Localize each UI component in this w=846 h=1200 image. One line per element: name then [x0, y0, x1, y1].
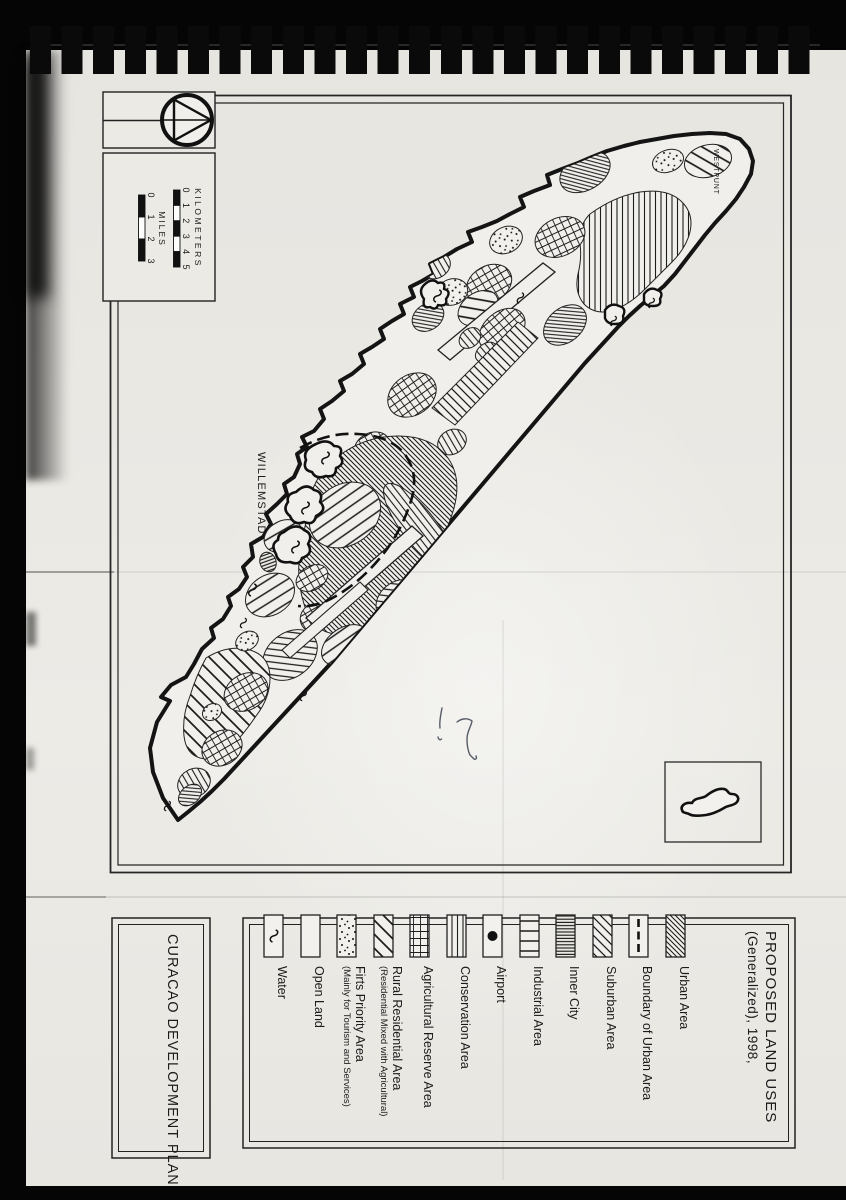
legend-item-label: Industrial Area	[531, 966, 545, 1046]
handwritten-pen-marks	[438, 708, 476, 759]
svg-text:0: 0	[181, 187, 191, 192]
scale-box: KILOMETERS 0 1 2 3 4 5 MILES	[103, 153, 215, 301]
svg-text:0: 0	[146, 192, 156, 197]
legend-item-label: Agricultural Reserve Area	[421, 966, 435, 1108]
north-arrow-box	[103, 92, 215, 148]
island-curacao: WILLEMSTAD WESTPUNT	[150, 133, 753, 820]
swatch-inner-city	[556, 915, 575, 957]
swatch-open-land	[301, 915, 320, 957]
swatch-rural	[374, 915, 393, 957]
swatch-tourism	[337, 915, 356, 957]
legend-item-label: Boundary of Urban Area	[640, 966, 654, 1100]
legend-item-label: Open Land	[312, 966, 326, 1028]
map-title: PROPOSED LAND USES (Generalized), 1998,	[745, 931, 779, 1123]
legend-item-label: Inner City	[567, 966, 581, 1020]
legend-item-label: Firts Priority Area	[353, 966, 367, 1062]
map-title-line2: (Generalized), 1998,	[745, 931, 760, 1064]
scanned-page: KILOMETERS 0 1 2 3 4 5 MILES	[0, 0, 846, 1200]
svg-text:3: 3	[181, 234, 191, 239]
scale-mile-bar	[139, 195, 146, 261]
inset-map	[665, 762, 761, 842]
legend-item-label: Conservation Area	[458, 966, 472, 1069]
svg-text:2: 2	[146, 236, 156, 241]
westpunt-label: WESTPUNT	[712, 149, 719, 195]
svg-text:1: 1	[181, 203, 191, 208]
klein-curacao-island	[682, 789, 738, 816]
svg-text:3: 3	[146, 258, 156, 263]
legend-item-label: Suburban Area	[604, 966, 618, 1049]
scale-km-label: KILOMETERS	[193, 188, 203, 268]
swatch-suburban	[593, 915, 612, 957]
legend-item-label: Water	[275, 966, 289, 999]
legend-labels: Water Open Land Firts Priority Area (Mai…	[275, 966, 691, 1116]
svg-text:1: 1	[146, 214, 156, 219]
svg-text:5: 5	[181, 264, 191, 269]
svg-text:4: 4	[181, 249, 191, 254]
map-title-line1: PROPOSED LAND USES	[762, 931, 779, 1123]
legend-box: Water Open Land Firts Priority Area (Mai…	[243, 915, 795, 1148]
map-artwork: KILOMETERS 0 1 2 3 4 5 MILES	[0, 0, 846, 1200]
scale-miles-label: MILES	[157, 211, 167, 247]
swatch-conservation	[447, 915, 466, 957]
legend-item-sublabel: (Residential Mixed with Agricultural)	[378, 966, 389, 1116]
swatch-industrial	[520, 915, 539, 957]
legend-swatches	[264, 915, 685, 957]
swatch-agriculture	[410, 915, 429, 957]
legend-item-label: Urban Area	[677, 966, 691, 1029]
willemstad-label: WILLEMSTAD	[255, 452, 267, 535]
legend-item-sublabel: (Mainly for Tourism and Services)	[341, 966, 352, 1107]
plan-title: CURACAO DEVELOPMENT PLAN	[164, 934, 180, 1186]
svg-text:2: 2	[181, 218, 191, 223]
legend-item-label: Airport	[494, 966, 508, 1003]
plan-title-box: CURACAO DEVELOPMENT PLAN	[112, 918, 210, 1186]
legend-item-label: Rural Residential Area	[390, 966, 404, 1090]
swatch-urban	[666, 915, 685, 957]
scale-km-bar	[174, 190, 181, 267]
